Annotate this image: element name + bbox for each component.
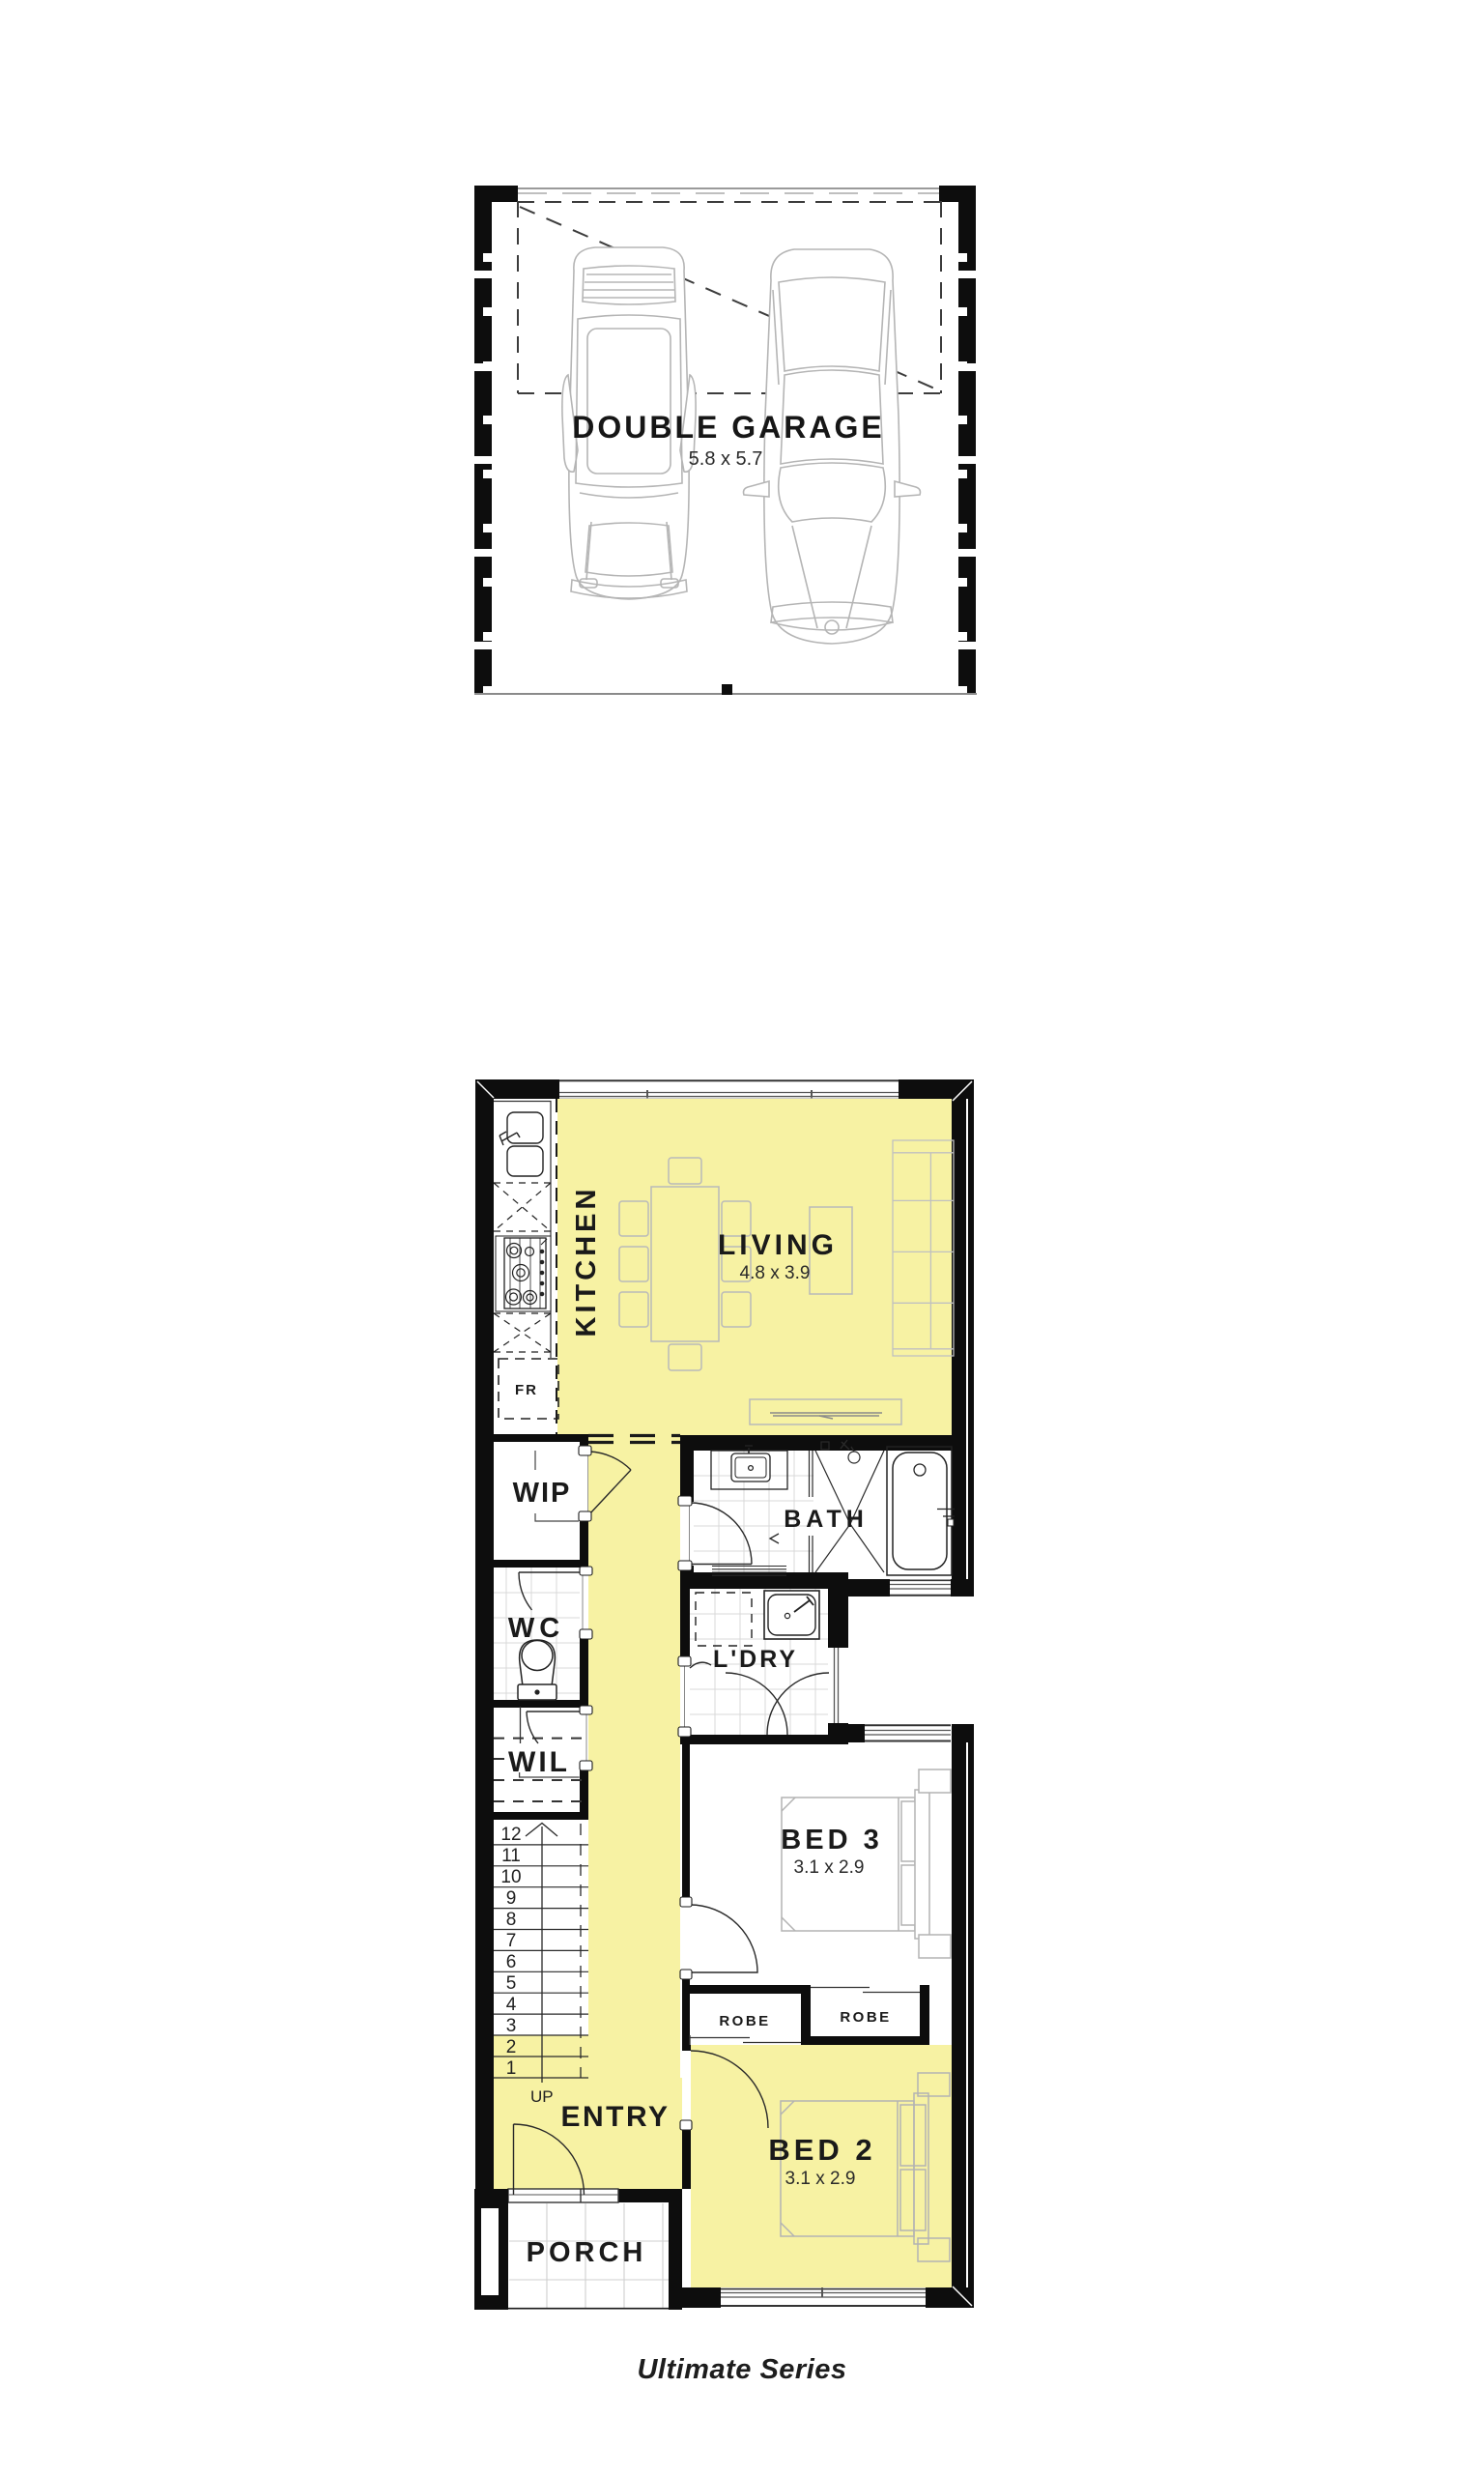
svg-text:KITCHEN: KITCHEN bbox=[571, 1186, 602, 1338]
svg-text:WIL: WIL bbox=[508, 1746, 570, 1778]
svg-text:BED 3: BED 3 bbox=[781, 1825, 882, 1855]
svg-text:Ultimate Series: Ultimate Series bbox=[637, 2354, 846, 2385]
svg-text:4: 4 bbox=[506, 1995, 517, 2015]
svg-text:LIVING: LIVING bbox=[718, 1229, 838, 1261]
svg-text:PORCH: PORCH bbox=[527, 2237, 647, 2268]
svg-text:2: 2 bbox=[506, 2037, 517, 2057]
svg-text:ENTRY: ENTRY bbox=[560, 2101, 670, 2133]
svg-text:6: 6 bbox=[506, 1952, 517, 1972]
svg-text:1: 1 bbox=[506, 2058, 517, 2079]
svg-text:FR: FR bbox=[515, 1382, 538, 1398]
svg-text:3.1 x 2.9: 3.1 x 2.9 bbox=[785, 2169, 856, 2189]
svg-text:5.8 x 5.7: 5.8 x 5.7 bbox=[689, 448, 763, 470]
svg-text:3: 3 bbox=[506, 2016, 517, 2036]
svg-text:3.1 x 2.9: 3.1 x 2.9 bbox=[794, 1857, 865, 1878]
svg-text:11: 11 bbox=[501, 1846, 521, 1866]
svg-text:7: 7 bbox=[506, 1931, 517, 1951]
svg-text:L'DRY: L'DRY bbox=[713, 1646, 798, 1673]
svg-text:BATH: BATH bbox=[784, 1506, 869, 1533]
svg-text:10: 10 bbox=[500, 1867, 521, 1887]
svg-text:4.8 x 3.9: 4.8 x 3.9 bbox=[740, 1263, 811, 1283]
svg-text:8: 8 bbox=[506, 1910, 517, 1930]
svg-text:BED 2: BED 2 bbox=[768, 2133, 875, 2167]
svg-text:ROBE: ROBE bbox=[719, 2013, 770, 2029]
svg-text:WC: WC bbox=[508, 1613, 564, 1644]
svg-text:UP: UP bbox=[530, 2087, 554, 2106]
svg-text:9: 9 bbox=[506, 1888, 517, 1909]
svg-text:WIP: WIP bbox=[513, 1478, 572, 1509]
svg-text:12: 12 bbox=[500, 1825, 521, 1845]
svg-text:ROBE: ROBE bbox=[840, 2009, 891, 2026]
svg-text:DOUBLE GARAGE: DOUBLE GARAGE bbox=[572, 410, 884, 445]
svg-text:5: 5 bbox=[506, 1973, 517, 1994]
